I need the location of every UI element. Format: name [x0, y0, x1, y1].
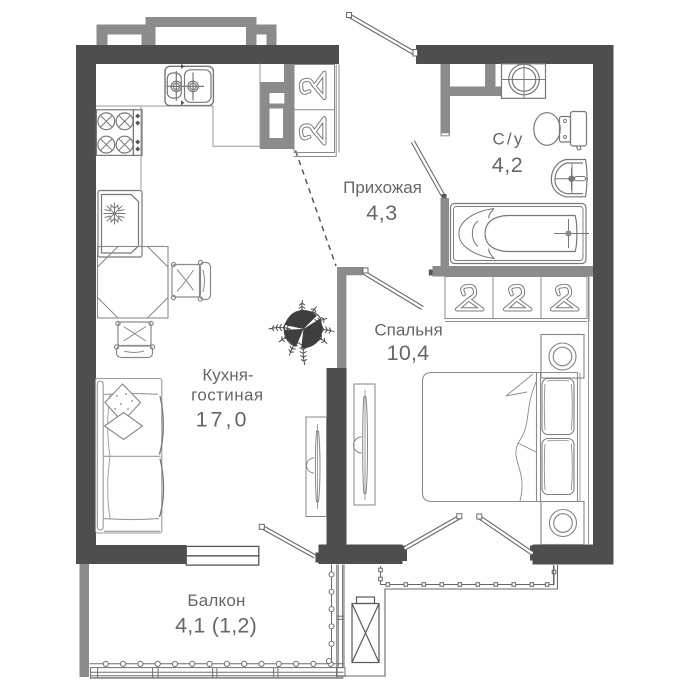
svg-text:4,2: 4,2 [492, 153, 523, 177]
svg-text:Прихожая: Прихожая [343, 178, 422, 197]
svg-text:Балкон: Балкон [187, 591, 245, 610]
svg-text:4,1 (1,2): 4,1 (1,2) [175, 614, 257, 638]
svg-text:10,4: 10,4 [387, 341, 430, 365]
svg-text:17,0: 17,0 [196, 407, 250, 431]
svg-text:С/у: С/у [492, 130, 524, 149]
svg-text:Кухня-: Кухня- [202, 366, 253, 385]
svg-text:Спальня: Спальня [374, 320, 442, 339]
svg-text:гостиная: гостиная [191, 386, 263, 405]
svg-text:4,3: 4,3 [366, 201, 397, 225]
